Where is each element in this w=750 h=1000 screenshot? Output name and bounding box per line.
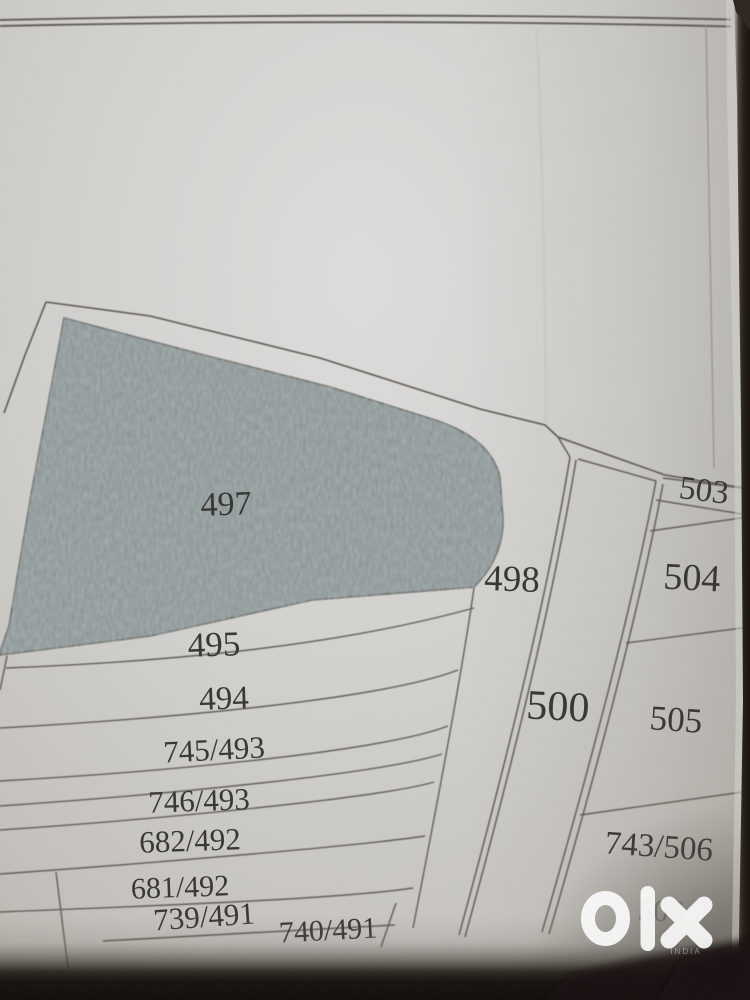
svg-text:504: 504 xyxy=(662,556,721,601)
svg-text:682/492: 682/492 xyxy=(139,821,242,860)
svg-text:745/493: 745/493 xyxy=(162,729,265,769)
svg-text:INDIA: INDIA xyxy=(670,947,701,956)
svg-text:498: 498 xyxy=(484,558,541,601)
svg-text:503: 503 xyxy=(677,470,731,512)
svg-text:494: 494 xyxy=(199,680,250,718)
svg-text:500: 500 xyxy=(525,682,590,731)
svg-text:505: 505 xyxy=(648,698,703,741)
svg-text:497: 497 xyxy=(200,485,252,524)
svg-text:746/493: 746/493 xyxy=(148,781,251,820)
svg-text:495: 495 xyxy=(187,624,241,665)
